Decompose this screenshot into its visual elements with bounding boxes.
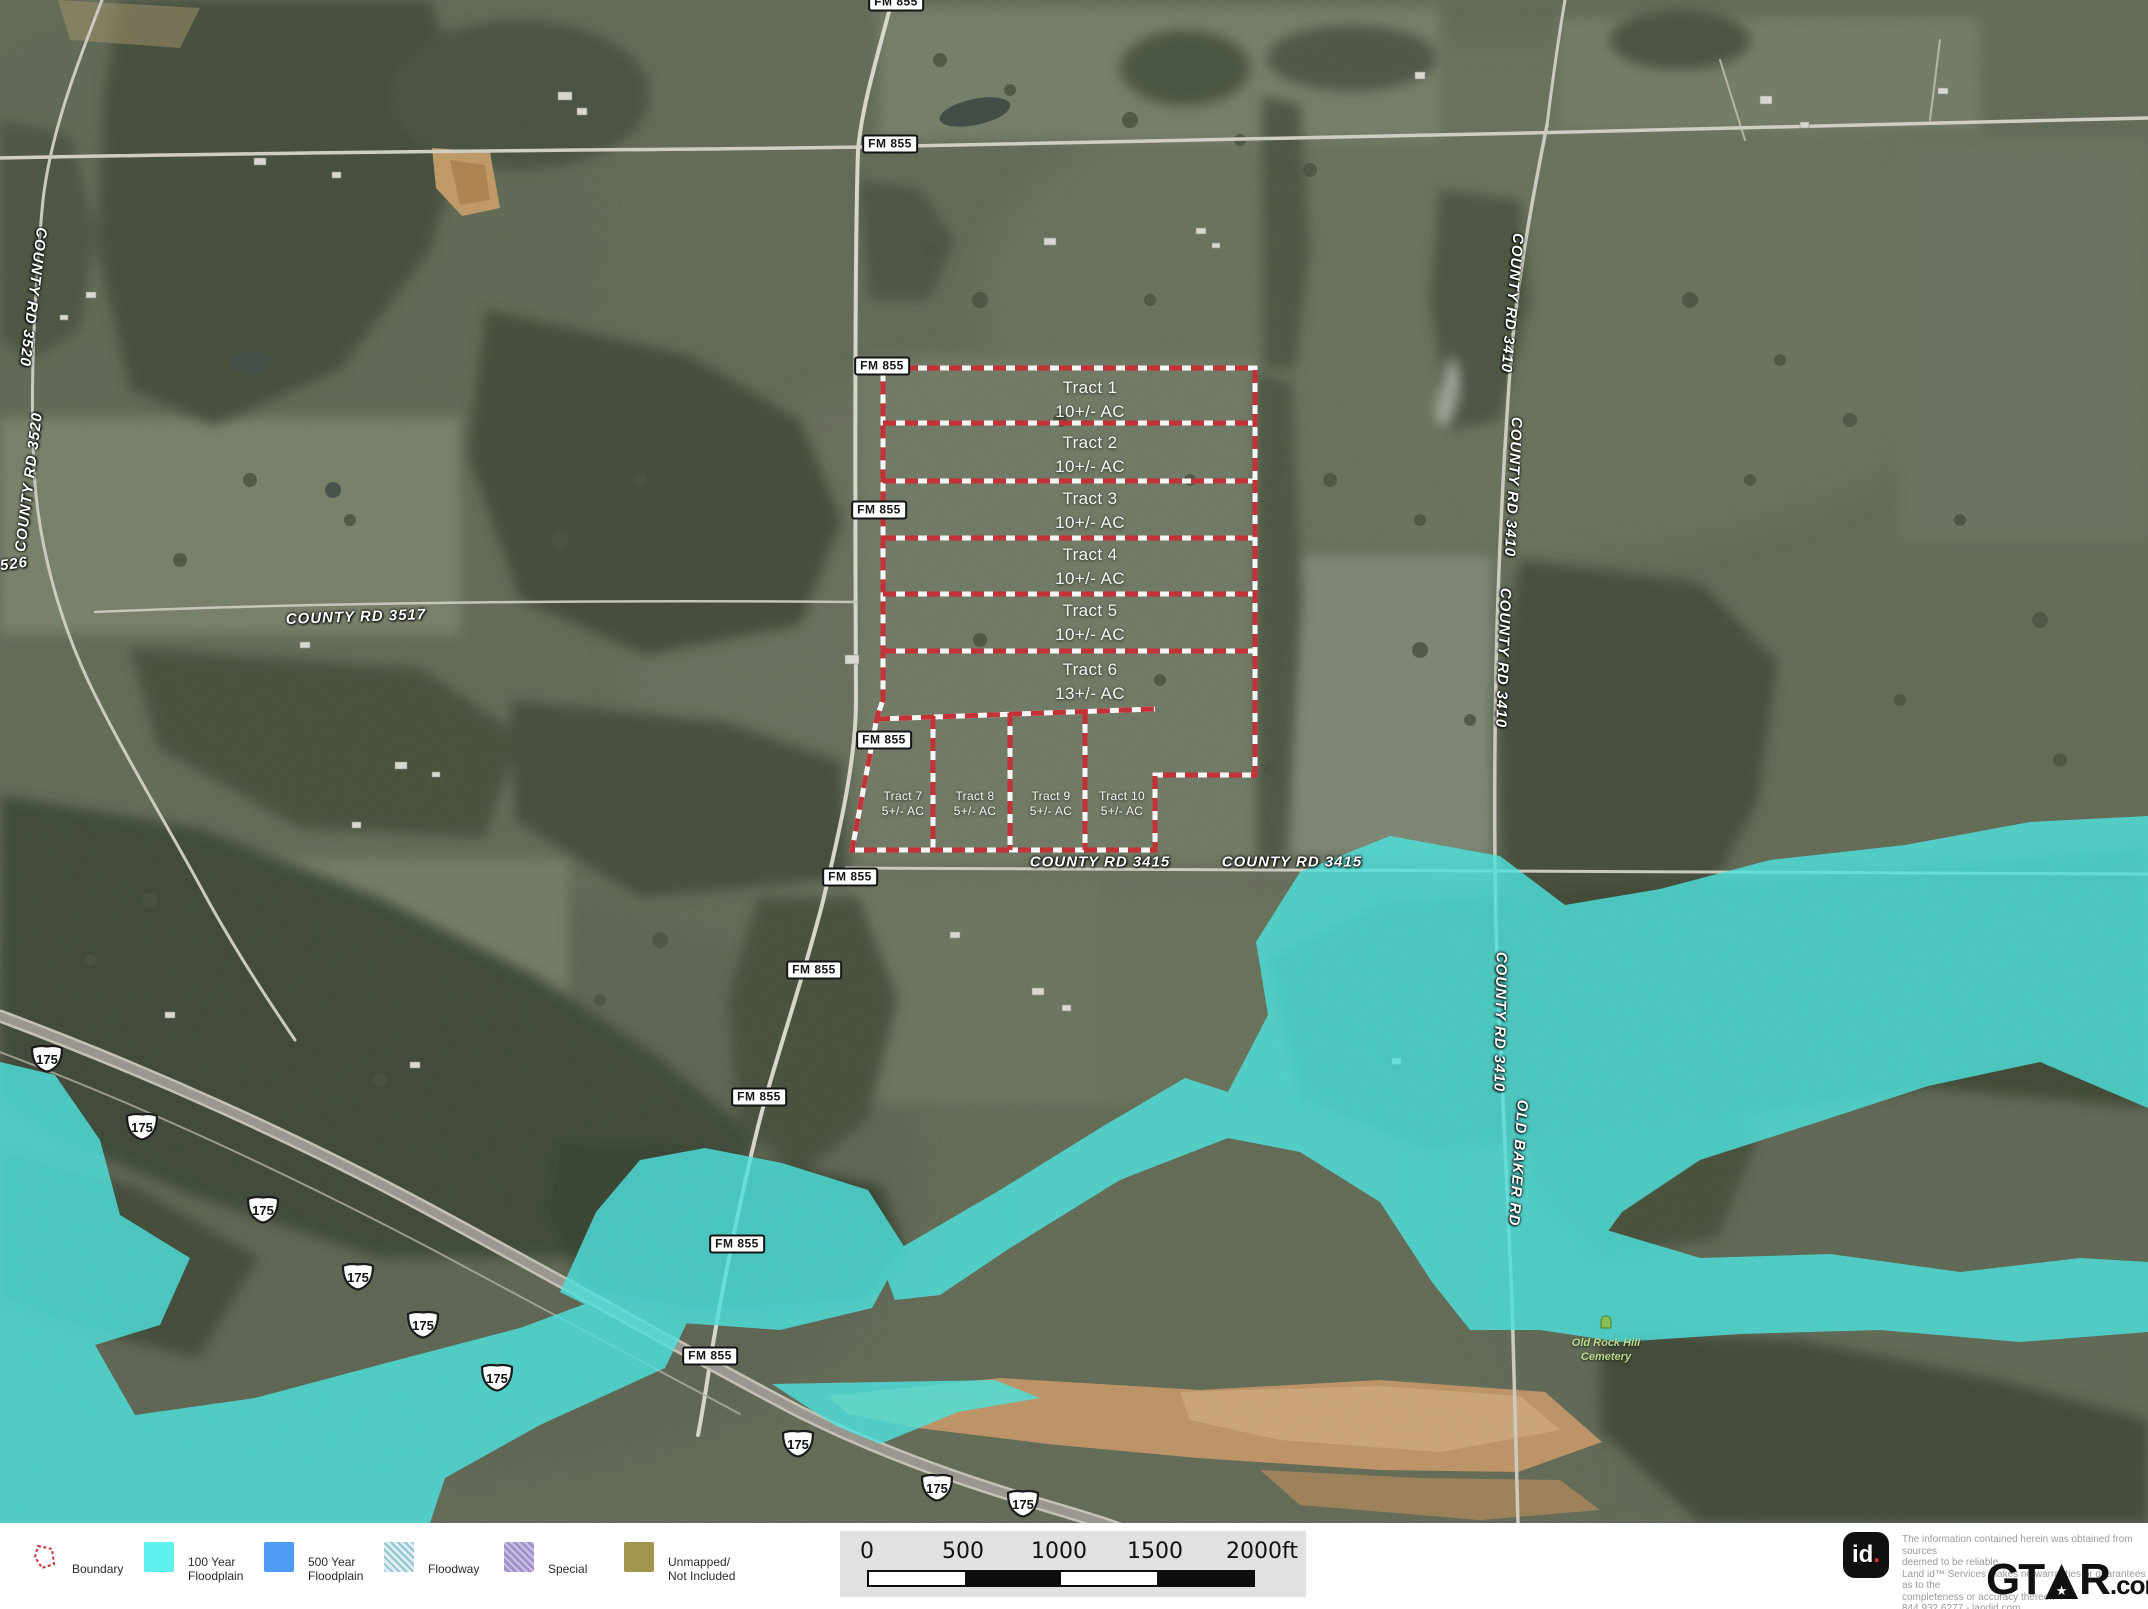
scale-tick-1500: 1500 bbox=[1127, 1539, 1183, 1564]
fm-855-road-label: FM 855 bbox=[854, 357, 910, 376]
tract-name: Tract 3 bbox=[1055, 487, 1125, 511]
tract-5-label: Tract 5 10+/- AC bbox=[1055, 599, 1125, 647]
disclaimer-line: The information contained herein was obt… bbox=[1902, 1534, 2148, 1557]
star-icon: ★ bbox=[2056, 1584, 2068, 1597]
us-175-shield: 175 bbox=[919, 1472, 955, 1502]
legend-boundary-label: Boundary bbox=[72, 1562, 123, 1576]
scale-bar-segments bbox=[867, 1570, 1255, 1587]
map-canvas: FM 855 FM 855 FM 855 FM 855 FM 855 FM 85… bbox=[0, 0, 2148, 1523]
tract-1-label: Tract 1 10+/- AC bbox=[1055, 376, 1125, 424]
scale-tick-0: 0 bbox=[860, 1539, 874, 1564]
legend-label-line1: Floodway bbox=[428, 1562, 479, 1576]
legend-unmapped-label: Unmapped/ Not Included bbox=[668, 1555, 735, 1583]
tract-acreage: 10+/- AC bbox=[1055, 400, 1125, 424]
gtar-logo: GT ★ R .com bbox=[1986, 1560, 2148, 1600]
shield-number: 175 bbox=[780, 1429, 816, 1459]
fm-855-road-label: FM 855 bbox=[682, 1347, 738, 1366]
tract-acreage: 10+/- AC bbox=[1055, 455, 1125, 479]
tract-name: Tract 5 bbox=[1055, 599, 1125, 623]
fm-855-road-label: FM 855 bbox=[851, 501, 907, 520]
gtar-logo-r: R bbox=[2079, 1560, 2109, 1600]
legend-label-line1: Special bbox=[548, 1562, 587, 1576]
gtar-logo-com: .com bbox=[2110, 1570, 2148, 1600]
fm-855-road-label: FM 855 bbox=[856, 731, 912, 750]
legend-unmapped-swatch bbox=[624, 1542, 654, 1572]
fm-855-road-label: FM 855 bbox=[709, 1235, 765, 1254]
legend-label-line2: Floodplain bbox=[188, 1569, 243, 1583]
shield-number: 175 bbox=[29, 1044, 65, 1074]
legend-label-line2: Floodplain bbox=[308, 1569, 363, 1583]
tract-name: Tract 2 bbox=[1055, 431, 1125, 455]
legend-special-label: Special bbox=[548, 1562, 587, 1576]
shield-number: 175 bbox=[245, 1195, 281, 1225]
tract-name: Tract 1 bbox=[1055, 376, 1125, 400]
gtar-logo-star-a: ★ bbox=[2045, 1564, 2078, 1599]
land-id-logo: id. bbox=[1843, 1532, 1889, 1578]
tract-3-label: Tract 3 10+/- AC bbox=[1055, 487, 1125, 535]
tract-acreage: 5+/- AC bbox=[954, 804, 996, 819]
fm-855-road-label: FM 855 bbox=[862, 135, 918, 154]
legend-500yr-swatch bbox=[264, 1542, 294, 1572]
legend-label-line1: 500 Year bbox=[308, 1555, 363, 1569]
shield-number: 175 bbox=[124, 1112, 160, 1142]
shield-number: 175 bbox=[1005, 1489, 1041, 1519]
fm-855-road-label: FM 855 bbox=[731, 1088, 787, 1107]
tract-acreage: 5+/- AC bbox=[1030, 804, 1072, 819]
tract-acreage: 10+/- AC bbox=[1055, 623, 1125, 647]
scale-bar: 0 500 1000 1500 2000ft bbox=[840, 1531, 1306, 1597]
shield-number: 175 bbox=[919, 1473, 955, 1503]
tract-9-label: Tract 9 5+/- AC bbox=[1030, 789, 1072, 819]
shield-number: 175 bbox=[405, 1310, 441, 1340]
tract-acreage: 5+/- AC bbox=[1099, 804, 1145, 819]
tract-acreage: 10+/- AC bbox=[1055, 511, 1125, 535]
scale-segment bbox=[1061, 1572, 1157, 1585]
tract-name: Tract 10 bbox=[1099, 789, 1145, 804]
cemetery-label-line2: Cemetery bbox=[1572, 1350, 1640, 1364]
scale-tick-1000: 1000 bbox=[1031, 1539, 1087, 1564]
tract-acreage: 10+/- AC bbox=[1055, 567, 1125, 591]
land-plat-map-screenshot: FM 855 FM 855 FM 855 FM 855 FM 855 FM 85… bbox=[0, 0, 2148, 1609]
scale-segment bbox=[965, 1572, 1061, 1585]
tract-7-label: Tract 7 5+/- AC bbox=[882, 789, 924, 819]
land-id-logo-text: id bbox=[1852, 1541, 1873, 1569]
tract-4-label: Tract 4 10+/- AC bbox=[1055, 543, 1125, 591]
tract-acreage: 13+/- AC bbox=[1055, 682, 1125, 706]
county-rd-3415-label: COUNTY RD 3415 bbox=[1030, 854, 1170, 871]
legend-floodway-swatch bbox=[384, 1542, 414, 1572]
shield-number: 175 bbox=[479, 1363, 515, 1393]
shield-number: 175 bbox=[340, 1262, 376, 1292]
scale-segment bbox=[869, 1572, 965, 1585]
fm-855-road-label: FM 855 bbox=[868, 0, 924, 12]
us-175-shield: 175 bbox=[245, 1194, 281, 1224]
us-175-shield: 175 bbox=[340, 1261, 376, 1291]
boundary-legend-icon bbox=[30, 1542, 60, 1572]
us-175-shield: 175 bbox=[780, 1428, 816, 1458]
tract-8-label: Tract 8 5+/- AC bbox=[954, 789, 996, 819]
land-id-logo-dot: . bbox=[1873, 1541, 1880, 1569]
county-rd-3415-label: COUNTY RD 3415 bbox=[1222, 854, 1362, 871]
tract-name: Tract 6 bbox=[1055, 658, 1125, 682]
tract-2-label: Tract 2 10+/- AC bbox=[1055, 431, 1125, 479]
legend-500yr-label: 500 Year Floodplain bbox=[308, 1555, 363, 1583]
tract-acreage: 5+/- AC bbox=[882, 804, 924, 819]
legend-label-line1: 100 Year bbox=[188, 1555, 243, 1569]
cemetery-label-line1: Old Rock Hill bbox=[1572, 1336, 1640, 1350]
us-175-shield: 175 bbox=[1005, 1488, 1041, 1518]
fm-855-road-label: FM 855 bbox=[786, 961, 842, 980]
legend-100yr-label: 100 Year Floodplain bbox=[188, 1555, 243, 1583]
us-175-shield: 175 bbox=[479, 1362, 515, 1392]
gtar-logo-gt: GT bbox=[1986, 1560, 2043, 1600]
cemetery-icon bbox=[1601, 1316, 1612, 1329]
legend-label-line2: Not Included bbox=[668, 1569, 735, 1583]
legend-label-line1: Unmapped/ bbox=[668, 1555, 735, 1569]
scale-tick-2000ft: 2000ft bbox=[1226, 1539, 1298, 1564]
fm-855-road-label: FM 855 bbox=[822, 868, 878, 887]
tract-name: Tract 8 bbox=[954, 789, 996, 804]
tract-name: Tract 7 bbox=[882, 789, 924, 804]
county-rd-3410-label: COUNTY RD 3410 bbox=[1490, 952, 1509, 1093]
us-175-shield: 175 bbox=[405, 1309, 441, 1339]
tract-10-label: Tract 10 5+/- AC bbox=[1099, 789, 1145, 819]
us-175-shield: 175 bbox=[29, 1043, 65, 1073]
scale-segment bbox=[1157, 1572, 1253, 1585]
cemetery-label: Old Rock Hill Cemetery bbox=[1572, 1336, 1640, 1364]
legend-100yr-swatch bbox=[144, 1542, 174, 1572]
us-175-shield: 175 bbox=[124, 1111, 160, 1141]
legend-special-swatch bbox=[504, 1542, 534, 1572]
scale-tick-500: 500 bbox=[942, 1539, 984, 1564]
tract-6-label: Tract 6 13+/- AC bbox=[1055, 658, 1125, 706]
tract-name: Tract 9 bbox=[1030, 789, 1072, 804]
satellite-imagery bbox=[0, 0, 2148, 1523]
tract-name: Tract 4 bbox=[1055, 543, 1125, 567]
legend-floodway-label: Floodway bbox=[428, 1562, 479, 1576]
